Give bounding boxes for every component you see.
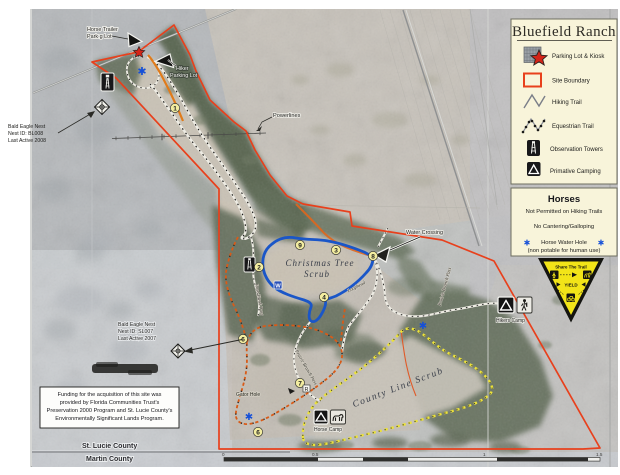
svg-text:Hikers Camp: Hikers Camp <box>496 318 525 324</box>
svg-text:Preservation 2000 Program and: Preservation 2000 Program and St. Lucie … <box>47 408 173 414</box>
svg-text:provided by Florida Communitie: provided by Florida Communities Trust's <box>60 400 160 406</box>
svg-text:YIELD: YIELD <box>564 283 578 288</box>
svg-text:No Cantering/Galloping: No Cantering/Galloping <box>534 224 594 230</box>
svg-text:Funding for the acquisition of: Funding for the acquisition of this site… <box>58 392 162 398</box>
svg-text:Horse Camp: Horse Camp <box>314 427 342 433</box>
svg-text:1.5: 1.5 <box>596 452 603 457</box>
svg-text:Horse Water Hole: Horse Water Hole <box>541 240 587 246</box>
svg-text:Bald Eagle Nest: Bald Eagle Nest <box>118 322 156 328</box>
svg-text:2: 2 <box>257 264 261 271</box>
svg-text:✱: ✱ <box>419 321 427 332</box>
svg-text:Christmas Tree: Christmas Tree <box>286 258 355 268</box>
svg-text:✱: ✱ <box>524 239 531 248</box>
svg-text:Primative Camping: Primative Camping <box>550 169 601 175</box>
svg-text:Powerlines: Powerlines <box>273 113 301 119</box>
svg-text:Observation Towers: Observation Towers <box>550 147 603 153</box>
svg-text:(non potable for human use): (non potable for human use) <box>528 248 601 254</box>
svg-text:Horses: Horses <box>548 194 580 205</box>
svg-text:Bald Eagle Nest: Bald Eagle Nest <box>8 124 46 130</box>
svg-text:Last Active 2008: Last Active 2008 <box>8 138 46 144</box>
svg-text:Bluefield Ranch: Bluefield Ranch <box>512 24 616 40</box>
svg-text:Nest ID: BL008: Nest ID: BL008 <box>8 131 43 137</box>
svg-text:6: 6 <box>256 429 260 436</box>
svg-text:✱: ✱ <box>245 412 253 423</box>
svg-text:R: R <box>305 387 309 393</box>
svg-text:Water Crossing: Water Crossing <box>406 230 443 236</box>
svg-text:W: W <box>275 283 281 289</box>
svg-text:Not Permitted on Hiking Trails: Not Permitted on Hiking Trails <box>526 209 603 215</box>
svg-text:1: 1 <box>483 452 486 457</box>
svg-text:3: 3 <box>334 247 338 254</box>
svg-text:4: 4 <box>322 294 326 301</box>
svg-text:Parking Lot: Parking Lot <box>170 73 198 79</box>
svg-text:1: 1 <box>173 105 177 112</box>
svg-text:✱: ✱ <box>598 239 605 248</box>
svg-text:8: 8 <box>371 253 375 260</box>
svg-text:Hiking Trail: Hiking Trail <box>552 100 582 106</box>
svg-text:Martin County: Martin County <box>86 456 133 463</box>
svg-text:Horse Trailer: Horse Trailer <box>87 27 118 33</box>
svg-text:Last Active 2007: Last Active 2007 <box>118 336 156 342</box>
svg-text:St. Lucie County: St. Lucie County <box>82 443 137 450</box>
svg-text:Gator Hole: Gator Hole <box>236 392 260 398</box>
svg-text:9: 9 <box>298 242 302 249</box>
svg-text:✱: ✱ <box>137 66 146 78</box>
svg-text:Nest ID: SL007: Nest ID: SL007 <box>118 329 153 335</box>
svg-text:Hiker: Hiker <box>176 66 189 72</box>
svg-text:0: 0 <box>222 452 225 457</box>
svg-text:Scrub: Scrub <box>304 269 330 279</box>
svg-text:Site Boundary: Site Boundary <box>552 79 590 85</box>
svg-text:0.5: 0.5 <box>312 452 319 457</box>
svg-text:Environmentally Significant La: Environmentally Significant Lands Progra… <box>55 416 164 422</box>
svg-text:Share The Trail: Share The Trail <box>555 265 586 270</box>
svg-text:Parking Lot & Kiosk: Parking Lot & Kiosk <box>552 54 605 60</box>
svg-text:7: 7 <box>298 380 302 387</box>
svg-text:Equestrian Trail: Equestrian Trail <box>552 124 594 130</box>
svg-text:Park g Lot: Park g Lot <box>87 34 112 40</box>
